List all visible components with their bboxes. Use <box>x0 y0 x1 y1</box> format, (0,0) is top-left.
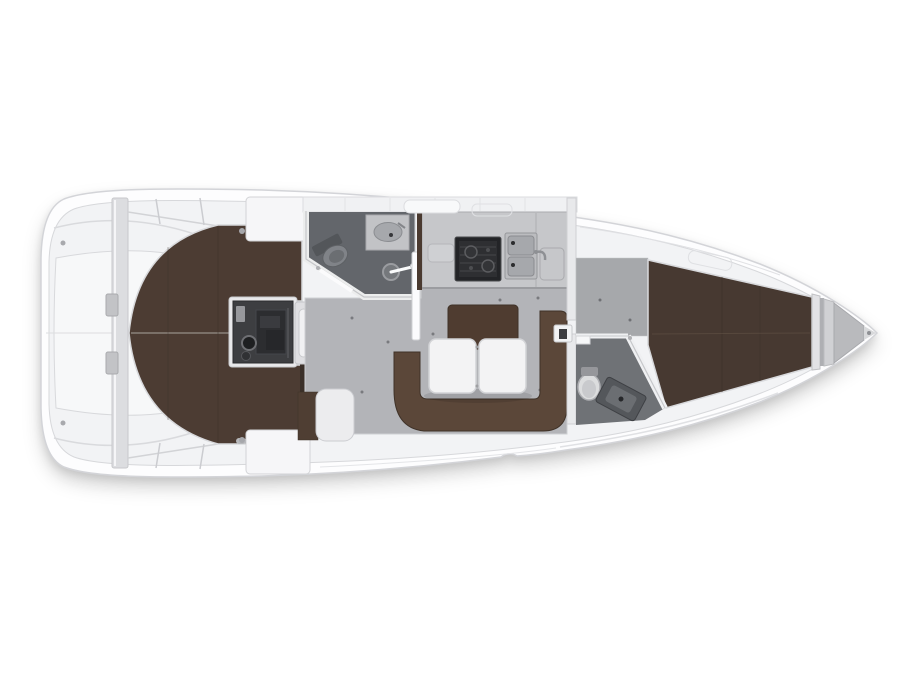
yacht-floor-plan-image <box>0 0 900 675</box>
counter-hatch <box>428 244 454 262</box>
floor-dot <box>599 299 602 302</box>
nav-seat-white <box>316 389 354 441</box>
forward-cabin-floor <box>576 258 648 336</box>
stove-burner <box>482 260 494 272</box>
bulkhead-lower <box>567 334 576 424</box>
nav-seat <box>298 389 354 441</box>
engine-flywheel <box>242 336 256 350</box>
yacht-floor-plan <box>0 0 900 675</box>
sink-drain <box>511 241 515 245</box>
engine-compartment <box>229 297 297 367</box>
engine-part <box>260 316 280 328</box>
engine-part <box>266 330 284 350</box>
basin-drain <box>389 233 393 237</box>
bulkhead-upper <box>567 198 576 320</box>
deck-fitting <box>61 421 66 426</box>
door-hinge <box>316 266 320 270</box>
faucet-base <box>534 250 538 254</box>
side-locker-top <box>246 197 310 241</box>
sink-drain <box>511 263 515 267</box>
floor-dot <box>629 319 632 322</box>
bulkhead-latch <box>106 294 118 316</box>
folding-table-leaf <box>429 339 476 393</box>
sink-basin <box>508 236 534 255</box>
deck-hatch <box>404 200 460 213</box>
deck-fitting <box>239 437 245 443</box>
washbasin <box>374 223 402 242</box>
table-hinge <box>476 385 479 388</box>
galley-wood-trim <box>417 211 422 290</box>
deck-fitting <box>239 228 245 234</box>
galley <box>417 211 567 290</box>
deck-fitting <box>61 241 66 246</box>
bow-partition <box>812 294 820 370</box>
bench-brown <box>298 392 318 440</box>
bow-partition <box>824 299 834 366</box>
forestay-fitting <box>867 331 871 335</box>
folding-table-leaf <box>479 339 526 393</box>
toilet-tank <box>581 367 598 376</box>
door-hinge <box>628 336 632 340</box>
stove-knob <box>486 248 490 252</box>
stove-knob <box>469 266 473 270</box>
engine-pulley <box>242 352 251 361</box>
head-door-frame <box>576 336 590 344</box>
bow-gap-floor <box>820 298 824 366</box>
stove-burner <box>465 246 477 258</box>
engine-part <box>236 306 245 322</box>
toilet-seat <box>582 380 596 398</box>
table-hinge <box>476 346 479 349</box>
bulkhead-latch <box>106 352 118 374</box>
mast-foot <box>559 329 567 339</box>
